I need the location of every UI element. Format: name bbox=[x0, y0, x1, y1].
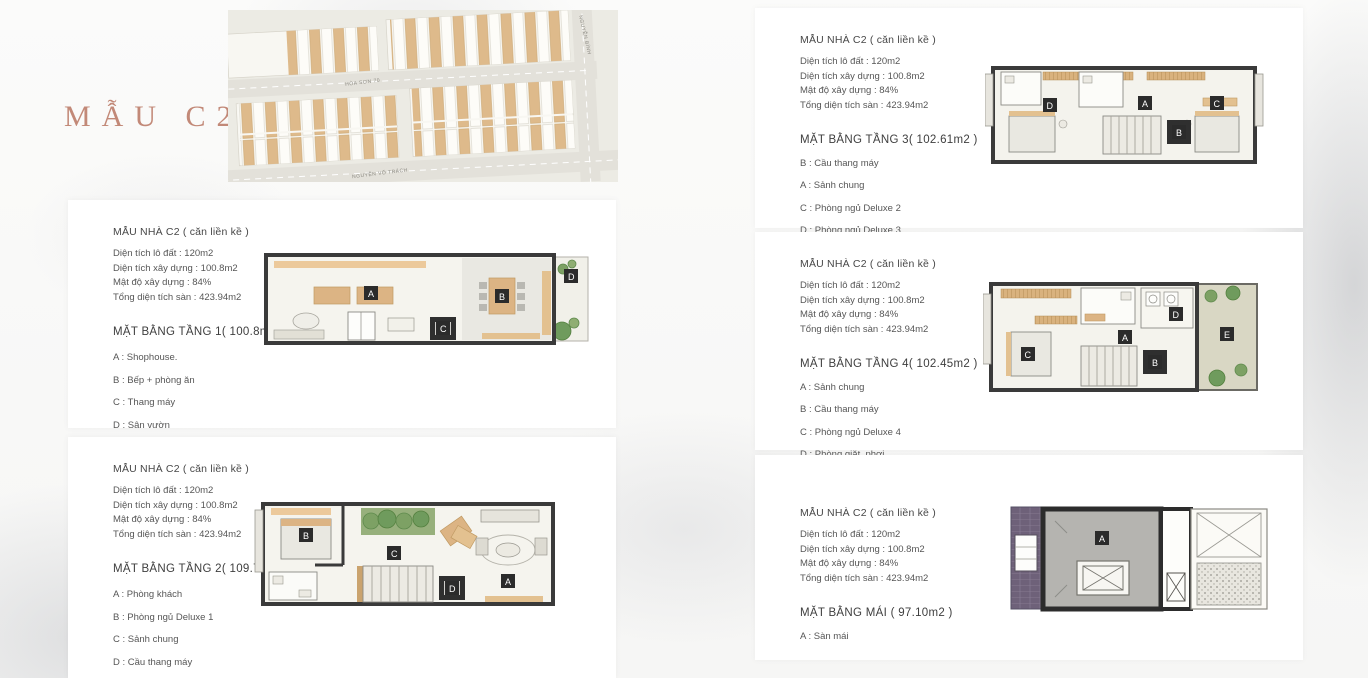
stat-density: Mật độ xây dựng : 84% bbox=[800, 84, 1005, 99]
svg-text:A: A bbox=[368, 289, 374, 299]
legend-item-c: C : Phòng ngủ Deluxe 4 bbox=[800, 427, 1005, 438]
svg-text:D: D bbox=[1047, 101, 1054, 111]
legend-item-a: A : Sàn mái bbox=[800, 631, 1005, 642]
legend-item-c: C : Sảnh chung bbox=[113, 634, 318, 645]
panel-floor-2: MẪU NHÀ C2 ( căn liền kề ) Diện tích lô … bbox=[68, 437, 616, 678]
room-chip-d: D bbox=[1043, 98, 1057, 112]
panel-floor-1: MẪU NHÀ C2 ( căn liền kề ) Diện tích lô … bbox=[68, 200, 616, 428]
model-header: MẪU NHÀ C2 ( căn liền kề ) bbox=[800, 507, 1005, 519]
room-chip-c: C bbox=[1210, 96, 1224, 110]
panel-floor-3-text: MẪU NHÀ C2 ( căn liền kề ) Diện tích lô … bbox=[800, 34, 1005, 236]
legend-item-b: B : Cầu thang máy bbox=[800, 404, 1005, 415]
room-chip-c: C bbox=[387, 546, 401, 560]
room-chip-a: A bbox=[1118, 330, 1132, 344]
svg-text:C: C bbox=[1025, 350, 1032, 360]
legend-item-d: D : Cầu thang máy bbox=[113, 657, 318, 668]
legend: B : Cầu thang máy A : Sảnh chung C : Phò… bbox=[800, 158, 1005, 237]
model-header: MẪU NHÀ C2 ( căn liền kề ) bbox=[800, 258, 1005, 270]
legend: A : Shophouse. B : Bếp + phòng ăn C : Th… bbox=[113, 352, 318, 431]
svg-text:A: A bbox=[1099, 534, 1105, 544]
legend-item-c: C : Thang máy bbox=[113, 397, 318, 408]
floor-plan-roof: A bbox=[1005, 495, 1273, 623]
room-chip-a: A bbox=[1095, 531, 1109, 545]
stat-build-area: Diện tích xây dựng : 100.8m2 bbox=[800, 294, 1005, 309]
stat-build-area: Diện tích xây dựng : 100.8m2 bbox=[800, 543, 1005, 558]
svg-text:B: B bbox=[303, 531, 309, 541]
svg-text:B: B bbox=[1152, 358, 1158, 368]
svg-text:D: D bbox=[1173, 310, 1180, 320]
floor-title: MẶT BẰNG TẦNG 3( 102.61m2 ) bbox=[800, 134, 1005, 146]
stat-density: Mật độ xây dựng : 84% bbox=[800, 308, 1005, 323]
stat-total-floor: Tổng diện tích sàn : 423.94m2 bbox=[800, 323, 1005, 338]
legend-item-b: B : Bếp + phòng ăn bbox=[113, 375, 318, 386]
room-chip-b: B bbox=[299, 528, 313, 542]
panel-roof: MẪU NHÀ C2 ( căn liền kề ) Diện tích lô … bbox=[755, 455, 1303, 660]
legend-item-d: D : Sân vườn bbox=[113, 420, 318, 431]
svg-text:A: A bbox=[1122, 333, 1128, 343]
svg-text:C: C bbox=[1214, 99, 1221, 109]
stat-density: Mật độ xây dựng : 84% bbox=[800, 557, 1005, 572]
model-header: MẪU NHÀ C2 ( căn liền kề ) bbox=[113, 226, 318, 238]
room-chip-c: C bbox=[1021, 347, 1035, 361]
svg-text:D: D bbox=[568, 272, 575, 282]
floor-title: MẶT BẰNG MÁI ( 97.10m2 ) bbox=[800, 607, 1005, 619]
floor-plan-4: C A D B E bbox=[983, 274, 1265, 402]
legend-item-b: B : Cầu thang máy bbox=[800, 158, 1005, 169]
panel-roof-text: MẪU NHÀ C2 ( căn liền kề ) Diện tích lô … bbox=[800, 507, 1005, 642]
page-title: MẪU C2 bbox=[64, 100, 243, 134]
legend-item-a: A : Sảnh chung bbox=[800, 382, 1005, 393]
svg-text:A: A bbox=[505, 577, 511, 587]
legend-item-c: C : Phòng ngủ Deluxe 2 bbox=[800, 203, 1005, 214]
room-chip-a: A bbox=[501, 574, 515, 588]
stat-lot-area: Diện tích lô đất : 120m2 bbox=[800, 55, 1005, 70]
room-chip-d: D bbox=[1169, 307, 1183, 321]
svg-text:B: B bbox=[499, 292, 505, 302]
room-chip-d: D bbox=[445, 581, 459, 595]
legend-item-a: A : Sảnh chung bbox=[800, 180, 1005, 191]
floor-title: MẶT BẰNG TẦNG 4( 102.45m2 ) bbox=[800, 358, 1005, 370]
svg-text:A: A bbox=[1142, 99, 1148, 109]
site-map-drawing: HÒA SƠN 70 NGUYỄN VÕ TRÁCH NGUYỄN BÍNH bbox=[228, 10, 618, 182]
svg-text:E: E bbox=[1224, 330, 1230, 340]
model-header: MẪU NHÀ C2 ( căn liền kề ) bbox=[800, 34, 1005, 46]
stat-lot-area: Diện tích lô đất : 120m2 bbox=[800, 528, 1005, 543]
svg-text:C: C bbox=[391, 549, 398, 559]
floor-plan-2: B C D A bbox=[253, 492, 593, 617]
room-chip-a: A bbox=[1138, 96, 1152, 110]
stat-lot-area: Diện tích lô đất : 120m2 bbox=[800, 279, 1005, 294]
site-map: HÒA SƠN 70 NGUYỄN VÕ TRÁCH NGUYỄN BÍNH bbox=[228, 10, 618, 182]
room-chip-c: C bbox=[436, 321, 450, 335]
panel-floor-4-text: MẪU NHÀ C2 ( căn liền kề ) Diện tích lô … bbox=[800, 258, 1005, 483]
legend: A : Sàn mái bbox=[800, 631, 1005, 642]
svg-text:D: D bbox=[449, 584, 456, 594]
room-chip-e: E bbox=[1220, 327, 1234, 341]
room-chip-b: B bbox=[495, 289, 509, 303]
room-chip-b: B bbox=[1148, 355, 1162, 369]
stat-total-floor: Tổng diện tích sàn : 423.94m2 bbox=[800, 99, 1005, 114]
svg-text:C: C bbox=[440, 324, 447, 334]
stat-build-area: Diện tích xây dựng : 100.8m2 bbox=[800, 70, 1005, 85]
room-chip-d: D bbox=[564, 269, 578, 283]
floor-plan-1: A B C D bbox=[258, 245, 598, 353]
stat-total-floor: Tổng diện tích sàn : 423.94m2 bbox=[800, 572, 1005, 587]
legend-item-a: A : Shophouse. bbox=[113, 352, 318, 363]
room-chip-b: B bbox=[1172, 125, 1186, 139]
room-chip-a: A bbox=[364, 286, 378, 300]
panel-floor-3: MẪU NHÀ C2 ( căn liền kề ) Diện tích lô … bbox=[755, 8, 1303, 228]
model-header: MẪU NHÀ C2 ( căn liền kề ) bbox=[113, 463, 318, 475]
svg-text:B: B bbox=[1176, 128, 1182, 138]
floor-plan-3: D A B C bbox=[985, 58, 1267, 173]
panel-floor-4: MẪU NHÀ C2 ( căn liền kề ) Diện tích lô … bbox=[755, 232, 1303, 450]
